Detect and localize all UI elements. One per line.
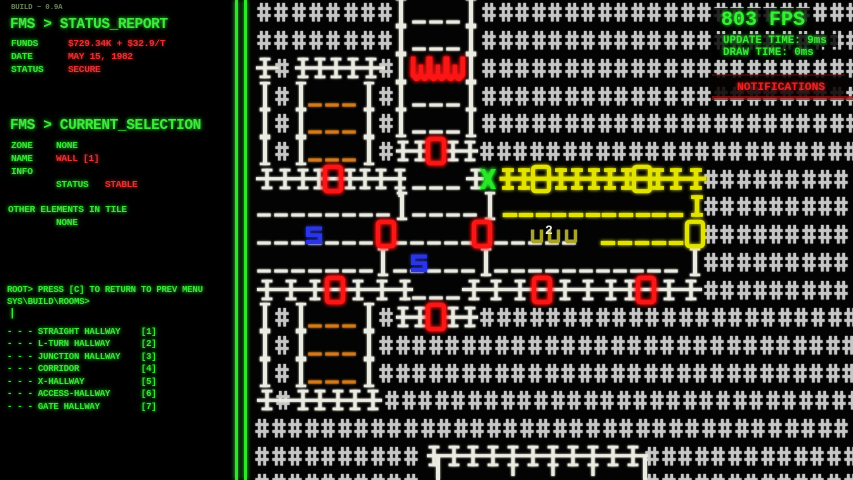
svg-text:2: 2 [545, 223, 553, 238]
